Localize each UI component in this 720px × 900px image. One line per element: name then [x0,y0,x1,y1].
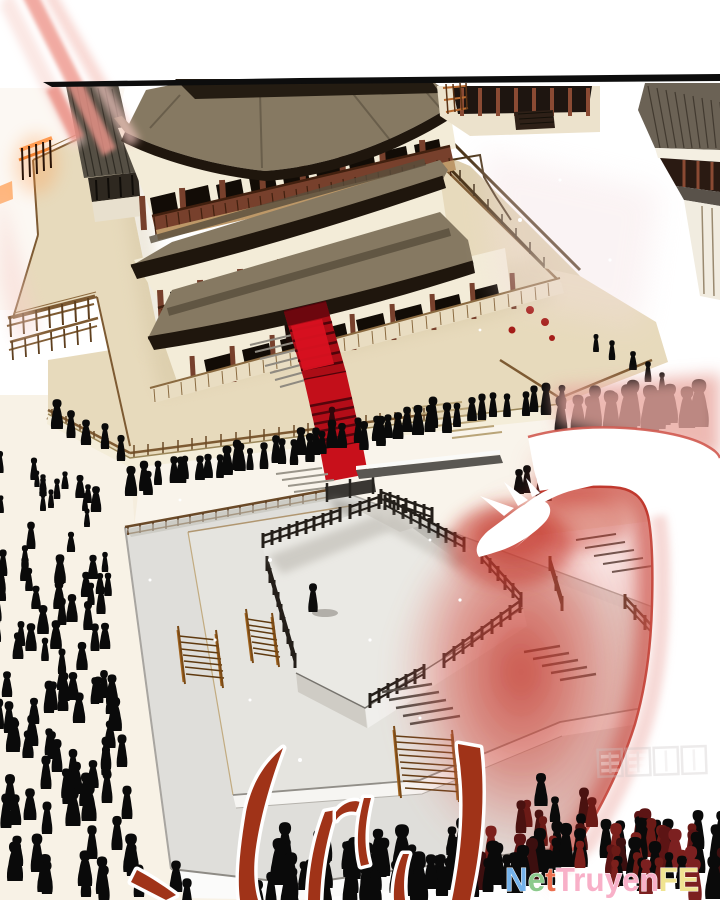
svg-text:NetTruyenFE: NetTruyenFE [505,861,699,898]
